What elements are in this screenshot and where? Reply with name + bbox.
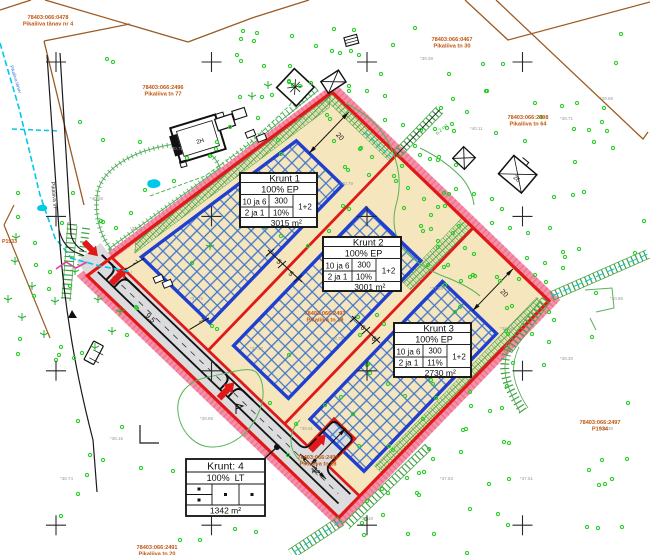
svg-text:*37.83: *37.83 (440, 476, 454, 481)
svg-text:300: 300 (428, 347, 442, 356)
svg-text:100% EP: 100% EP (345, 249, 383, 259)
svg-text:Pikaliiva tänav nr 4: Pikaliiva tänav nr 4 (23, 22, 74, 28)
svg-text:10%: 10% (356, 273, 372, 282)
svg-text:*39.89: *39.89 (200, 416, 214, 421)
svg-text:*38.16: *38.16 (110, 436, 124, 441)
svg-text:1+2: 1+2 (452, 353, 466, 362)
svg-text:78403:066:2496: 78403:066:2496 (142, 85, 183, 91)
svg-text:*38.74: *38.74 (60, 476, 74, 481)
svg-text:100% LT: 100% LT (207, 473, 245, 483)
svg-text:Pikaliiva tn 64: Pikaliiva tn 64 (509, 122, 547, 128)
svg-text:78403:066:0478: 78403:066:0478 (27, 15, 68, 21)
svg-text:*40.79: *40.79 (340, 181, 354, 186)
svg-text:P1933: P1933 (2, 239, 17, 245)
svg-text:1+2: 1+2 (298, 203, 312, 212)
svg-text:2730 m²: 2730 m² (425, 368, 456, 378)
svg-text:Krunt 1: Krunt 1 (269, 173, 300, 184)
svg-text:*38.21: *38.21 (130, 226, 144, 231)
svg-text:*39.30: *39.30 (560, 356, 574, 361)
svg-text:10 ja 6: 10 ja 6 (242, 198, 267, 207)
svg-text:*38.79: *38.79 (330, 336, 344, 341)
svg-text:Pikaliiva tn 30: Pikaliiva tn 30 (433, 44, 470, 50)
svg-text:2 ja 1: 2 ja 1 (399, 359, 419, 368)
svg-text:Krunt 3: Krunt 3 (423, 323, 454, 334)
svg-text:300: 300 (357, 261, 371, 270)
svg-text:*37.61: *37.61 (520, 476, 534, 481)
svg-text:3001 m²: 3001 m² (354, 282, 385, 292)
svg-text:78403:066:2497: 78403:066:2497 (579, 420, 620, 426)
svg-text:*40.66: *40.66 (90, 196, 104, 201)
svg-text:1342 m²: 1342 m² (210, 506, 241, 516)
svg-text:10%: 10% (273, 209, 289, 218)
svg-text:Pikaliiva tn 77: Pikaliiva tn 77 (144, 92, 181, 98)
svg-text:Pikaliiva tn 20: Pikaliiva tn 20 (138, 552, 175, 556)
svg-text:78403:066:0467: 78403:066:0467 (431, 37, 472, 43)
svg-text:2 ja 1: 2 ja 1 (245, 209, 265, 218)
svg-text:300: 300 (274, 197, 288, 206)
svg-text:100% EP: 100% EP (261, 185, 299, 195)
svg-text:*40.11: *40.11 (470, 126, 483, 131)
svg-text:Krunt 2: Krunt 2 (353, 237, 384, 248)
svg-text:*37.75: *37.75 (190, 296, 204, 301)
svg-text:78403:066:2498: 78403:066:2498 (507, 115, 548, 121)
svg-text:*37.12: *37.12 (250, 346, 264, 351)
svg-text:*39.61: *39.61 (300, 426, 314, 431)
svg-text:*40.71: *40.71 (170, 146, 184, 151)
svg-text:Pikaliiva tn 19: Pikaliiva tn 19 (306, 318, 343, 324)
svg-text:100% EP: 100% EP (415, 335, 453, 345)
svg-text:Pikaliiva tn 28: Pikaliiva tn 28 (299, 462, 336, 468)
svg-text:*37.89: *37.89 (430, 286, 444, 291)
svg-text:*39.28: *39.28 (420, 56, 434, 61)
svg-text:2 ja 1: 2 ja 1 (328, 273, 348, 282)
svg-text:78403:066:2495: 78403:066:2495 (297, 455, 338, 461)
svg-text:1+2: 1+2 (382, 267, 396, 276)
svg-text:*39.68: *39.68 (600, 96, 614, 101)
svg-text:78403:066:2493: 78403:066:2493 (304, 311, 345, 317)
svg-text:*40.44: *40.44 (295, 116, 309, 121)
svg-text:Krunt: 4: Krunt: 4 (207, 461, 244, 473)
svg-text:P1934: P1934 (592, 427, 609, 433)
svg-text:10 ja 6: 10 ja 6 (396, 348, 421, 357)
svg-text:10 ja 6: 10 ja 6 (325, 262, 350, 271)
svg-text:*40.86: *40.86 (610, 296, 624, 301)
svg-text:11%: 11% (427, 359, 442, 368)
svg-text:3015 m²: 3015 m² (271, 218, 302, 228)
svg-text:78403:066:2491: 78403:066:2491 (136, 545, 177, 551)
svg-text:*39.71: *39.71 (560, 116, 574, 121)
svg-text:*38.66: *38.66 (500, 326, 514, 331)
